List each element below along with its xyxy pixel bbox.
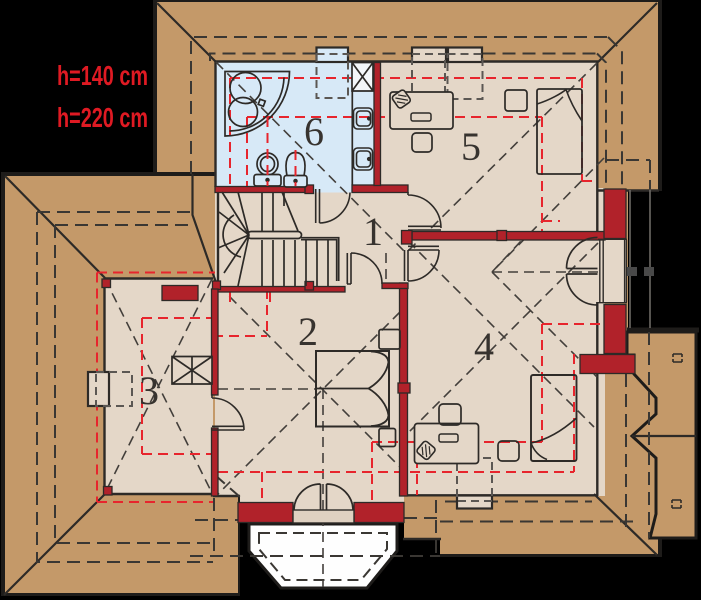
svg-text:h=140 cm: h=140 cm [57, 60, 148, 91]
svg-text:6: 6 [304, 109, 324, 154]
svg-text:4: 4 [474, 324, 494, 369]
svg-text:h=220 cm: h=220 cm [57, 102, 148, 133]
svg-text:1: 1 [363, 209, 383, 254]
svg-text:5: 5 [461, 124, 481, 169]
svg-text:2: 2 [298, 309, 318, 354]
svg-text:3: 3 [139, 368, 159, 413]
